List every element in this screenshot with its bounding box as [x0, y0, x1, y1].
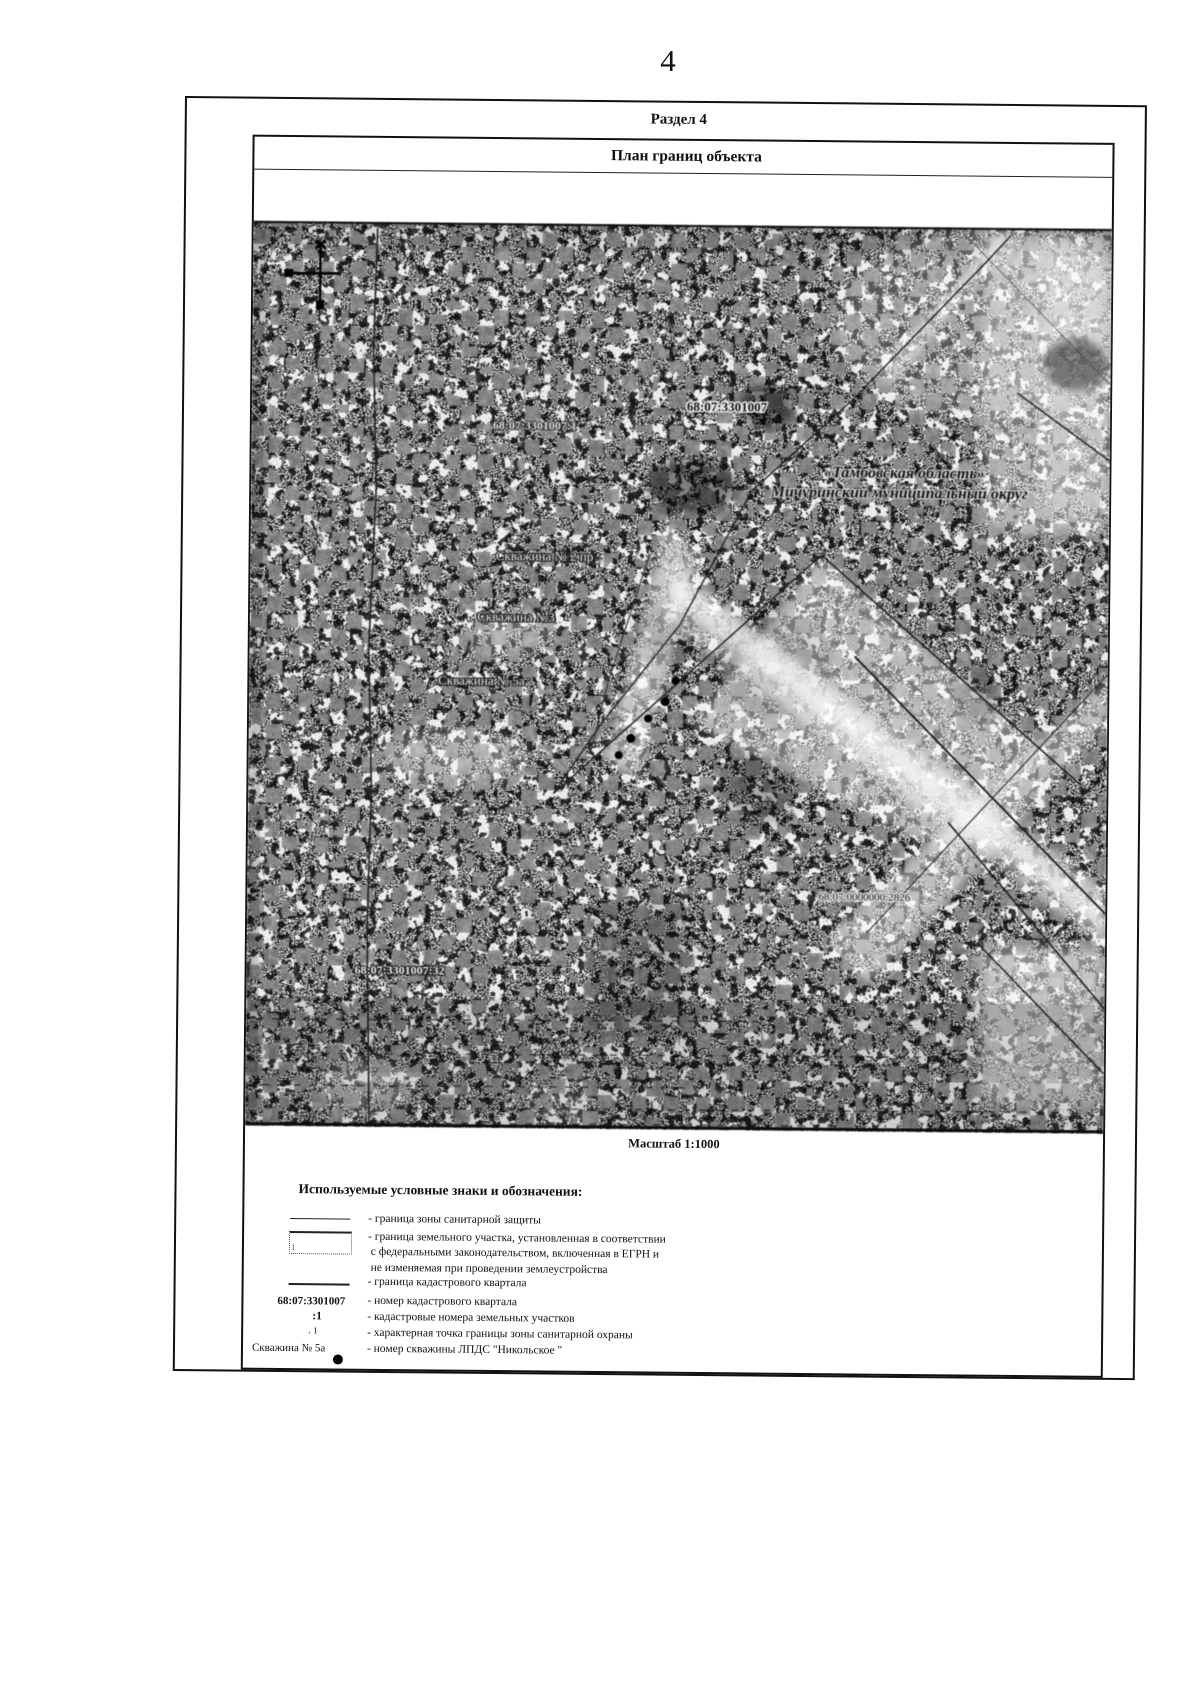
- svg-text:68:07:3301007:1: 68:07:3301007:1: [493, 418, 577, 433]
- svg-text:Скважина № 2 пр: Скважина № 2 пр: [496, 548, 594, 564]
- svg-text:Мичуринский муниципальный окру: Мичуринский муниципальный округ: [770, 484, 1028, 503]
- svg-text:68:07:3301007: 68:07:3301007: [687, 399, 768, 415]
- svg-text:«Тамбовская область»: «Тамбовская область»: [824, 464, 985, 483]
- svg-text:68:07:0000000:2826: 68:07:0000000:2826: [818, 891, 910, 904]
- svg-text:Скважина №3: Скважина №3: [477, 609, 555, 625]
- svg-text:68:07:3301007:32: 68:07:3301007:32: [355, 963, 445, 978]
- svg-text:Скважина № 5а: Скважина № 5а: [438, 672, 525, 688]
